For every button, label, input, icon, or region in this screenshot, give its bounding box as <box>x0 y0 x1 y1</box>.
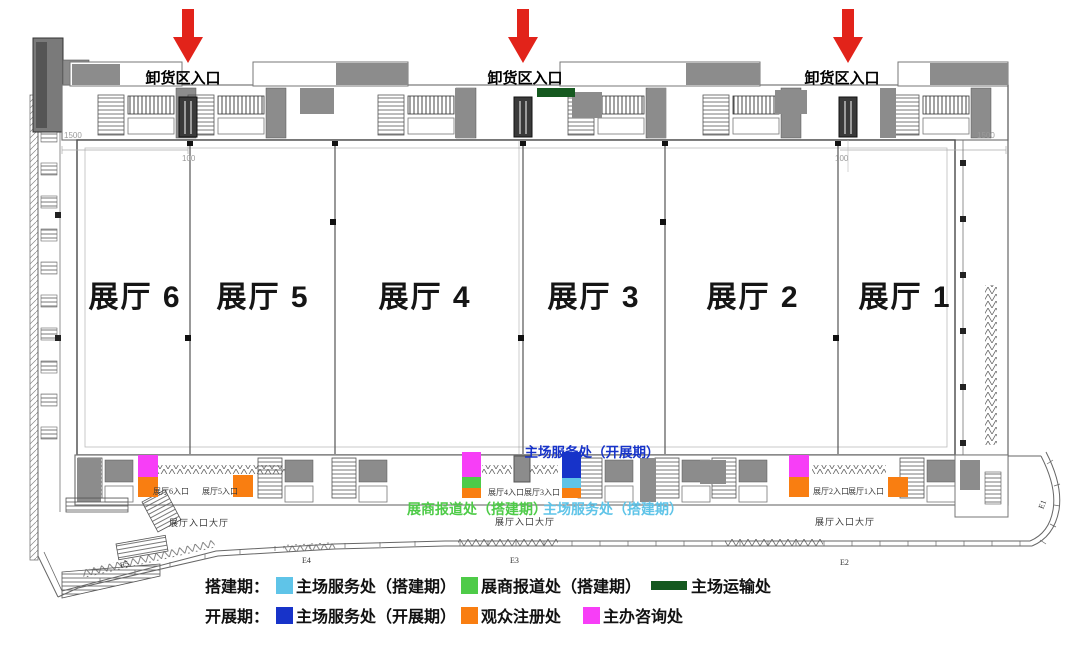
marker-hall2-organizer-info <box>789 455 809 477</box>
hall-5-label: 展厅 5 <box>188 272 338 316</box>
legend-swatch-visitor_registration <box>461 607 478 624</box>
legend-item: 主场运输处 <box>646 573 771 597</box>
lobby-label-center: 展厅入口大厅 <box>490 515 560 528</box>
legend-row-show: 开展期： 主场服务处（开展期）观众注册处主办咨询处 <box>205 605 776 625</box>
hall-2-label: 展厅 2 <box>678 272 828 316</box>
unloading-arrow-1 <box>173 9 203 63</box>
gate-e2-label: E2 <box>840 558 849 567</box>
lobby-label-east: 展厅入口大厅 <box>810 515 880 528</box>
hall-1-label: 展厅 1 <box>830 272 980 316</box>
legend-label: 主场服务处（开展期） <box>296 603 456 627</box>
legend-label: 观众注册处 <box>481 603 561 627</box>
marker-hall1-visitor-registration <box>888 477 908 497</box>
legend-item: 主场服务处（开展期） <box>276 603 456 627</box>
annotation-show-service: 主场服务处（开展期） <box>507 441 677 461</box>
legend-label: 主场服务处（搭建期） <box>296 573 456 597</box>
legend-swatch-show_service <box>276 607 293 624</box>
legend-period-show: 开展期： <box>205 603 269 627</box>
legend-period-setup: 搭建期： <box>205 573 269 597</box>
marker-transport-office <box>537 88 575 97</box>
dimension-100-right: 100 <box>835 154 848 163</box>
dimension-1500-left: 1500 <box>64 131 82 140</box>
entrance-hall1-label: 展厅1入口 <box>841 486 891 497</box>
legend-swatch-exhibitor_checkin <box>461 577 478 594</box>
legend-row-setup: 搭建期： 主场服务处（搭建期）展商报道处（搭建期）主场运输处 <box>205 575 776 595</box>
legend-swatch-setup_service <box>276 577 293 594</box>
unloading-arrow-2 <box>508 9 538 63</box>
entrance-hall6-label: 展厅6入口 <box>146 486 196 497</box>
marker-hall4-organizer-info <box>462 452 481 477</box>
unloading-arrow-3 <box>833 9 863 63</box>
legend-item: 主办咨询处 <box>583 603 683 627</box>
hall-3-label: 展厅 3 <box>519 272 669 316</box>
legend-items-show: 主场服务处（开展期）观众注册处主办咨询处 <box>276 603 688 627</box>
legend-swatch-organizer_info <box>583 607 600 624</box>
dimension-1500-right: 1500 <box>977 131 995 140</box>
dimension-100-left: 100 <box>182 154 195 163</box>
unloading-entrance-label-1: 卸货区入口 <box>133 67 233 88</box>
legend-swatch-transport <box>651 581 687 590</box>
legend-item: 观众注册处 <box>461 603 561 627</box>
entrance-hall5-label: 展厅5入口 <box>195 486 245 497</box>
marker-hall6-organizer-info <box>138 455 158 477</box>
marker-hall4-exhibitor-checkin <box>462 477 481 488</box>
legend-items-setup: 主场服务处（搭建期）展商报道处（搭建期）主场运输处 <box>276 573 776 597</box>
exhibition-floor-plan: 卸货区入口 卸货区入口 卸货区入口 展厅 6 展厅 5 展厅 4 展厅 3 展厅… <box>0 0 1080 657</box>
legend-label: 主场运输处 <box>691 573 771 597</box>
floor-plan-drawing <box>0 0 1080 657</box>
lobby-label-west: 展厅入口大厅 <box>164 516 234 529</box>
legend-item: 展商报道处（搭建期） <box>461 573 641 597</box>
gate-e3-label: E3 <box>510 556 519 565</box>
entrance-hall3-label: 展厅3入口 <box>517 487 567 498</box>
legend-label: 展商报道处（搭建期） <box>481 573 641 597</box>
unloading-entrance-label-3: 卸货区入口 <box>792 67 892 88</box>
hall-4-label: 展厅 4 <box>350 272 500 316</box>
unloading-entrance-label-2: 卸货区入口 <box>475 67 575 88</box>
legend: 搭建期： 主场服务处（搭建期）展商报道处（搭建期）主场运输处 开展期： 主场服务… <box>205 575 776 635</box>
legend-label: 主办咨询处 <box>603 603 683 627</box>
legend-item: 主场服务处（搭建期） <box>276 573 456 597</box>
gate-e4-label: E4 <box>302 556 311 565</box>
marker-hall4-visitor-registration <box>462 488 481 498</box>
